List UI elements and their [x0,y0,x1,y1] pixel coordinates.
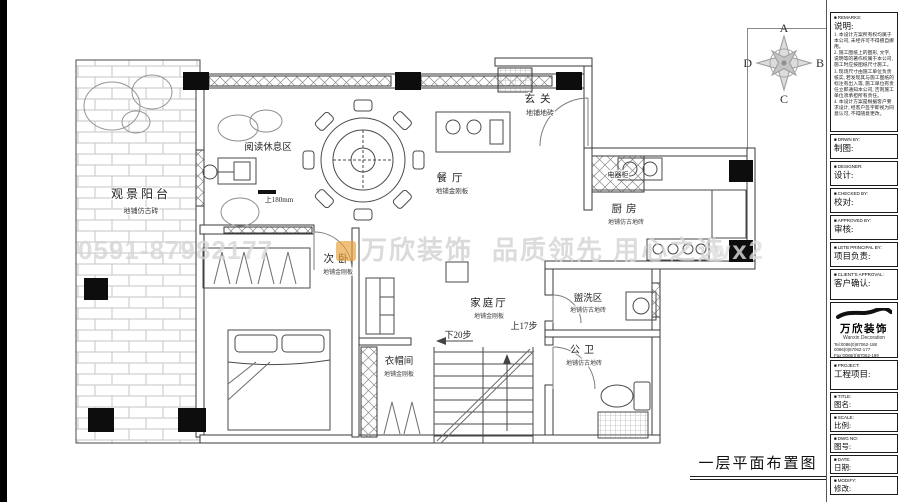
approved-by-box: APPROVED BY: 审核: [830,215,898,240]
modify-box: MODIFY: 修改: [830,476,898,495]
room-finish-wash-area: 地铺仿古地砖 [570,306,606,314]
drawn-by-label: 制图: [834,143,894,154]
title-block: REMARKS: 说明: 1. 本设计方案所有权均属于本公司, 未经许可不得擅自… [830,12,898,497]
room-finish-family-room: 地铺金刚板 [474,312,504,320]
compass-label-a: A [780,21,789,35]
modify-label: 修改: [834,484,894,493]
remarks-note-3: 3. 现场尺寸由施工单位负责核实, 若发现其与施工图纸的标注有出入等, 施工单位… [834,70,894,100]
drawn-by-box: DRWN BY: 制图: [830,134,898,159]
date-box: DATE: 日期: [830,455,898,474]
drawing-name-label: 图名: [834,400,894,409]
toilet-icon [601,382,650,410]
scale-box: SCALE: 比例: [830,413,898,432]
room-label-bedroom: 次卧 [324,252,353,265]
balcony-area [76,60,200,443]
drawing-title: 一层平面布置图 [690,452,826,480]
room-label-wardrobe: 衣帽间 [385,355,414,367]
company-name-en: Wanxin Decoration [834,335,894,341]
client-approval-label: 客户确认: [834,278,894,289]
room-finish-bathroom: 地铺仿古地砖 [566,359,602,367]
room-finish-foyer: 地铺地砖 [526,108,554,117]
project-box: PROJECT: 工程项目: [830,360,898,390]
principal-label: 项目负责: [834,251,894,262]
wardrobe-hangers-icon [384,402,420,434]
checked-by-box: CHECKED BY: 校对: [830,188,898,213]
stairs-icon [434,337,534,443]
dwg-no-label: 图号: [834,442,894,451]
room-label-balcony: 观景阳台 [111,186,171,201]
shower-drain-icon [598,412,648,438]
project-label: 工程项目: [834,369,894,380]
room-finish-dining: 地铺金刚板 [436,186,469,195]
client-approval-box: CLIENT'S APPROVAL: 客户确认: [830,269,898,300]
compass-label-b: B [816,56,824,70]
remarks-box: REMARKS: 说明: 1. 本设计方案所有权均属于本公司, 未经许可不得擅自… [830,12,898,132]
compass-label-c: C [780,92,788,106]
bed-icon [228,330,330,430]
approved-by-label: 审核: [834,224,894,235]
room-label-reading: 阅读休息区 [244,141,292,153]
room-label-dining: 餐厅 [437,171,468,184]
step-marker [258,190,276,194]
room-label-foyer: 玄关 [525,92,556,105]
drawing-name-box: TITLE: 图名: [830,392,898,411]
principal-box: LETB PRINCIPAL BY: 项目负责: [830,242,898,267]
annotation-entry-step: 上180mm [265,195,294,204]
annotation-stairs-down: 下20步 [444,330,471,340]
room-label-wash-area: 盥洗区 [574,292,603,304]
side-table-icon [446,262,468,282]
designer-label: 设计: [834,170,894,181]
room-label-appliance-cabinet: 电器柜 [608,170,629,179]
scale-label: 比例: [834,421,894,430]
remarks-notes: 1. 本设计方案所有权均属于本公司, 未经许可不得擅自挪用。 2. 施工图纸上的… [834,33,894,118]
dwg-no-box: DWG NO: 图号: [830,434,898,453]
floor-plan-canvas: 观景阳台 地铺仿古砖 阅读休息区 玄关 地铺地砖 餐厅 地铺金刚板 电器柜 厨房… [0,0,830,502]
sofa-icon [366,278,394,334]
annotation-stairs-up: 上17步 [510,321,537,331]
designer-box: DESIGNER: 设计: [830,161,898,186]
remarks-note-1: 1. 本设计方案所有权均属于本公司, 未经许可不得擅自挪用。 [834,33,894,51]
room-finish-balcony: 地铺仿古砖 [124,206,159,215]
room-finish-bedroom: 地铺金刚板 [323,268,353,276]
dining-table-icon [303,100,424,220]
company-logo-box: 万欣装饰 Wanxin Decoration Tel:0086(0)87062-… [830,302,898,358]
room-finish-wardrobe: 地铺金刚板 [384,370,414,378]
room-label-bathroom: 公卫 [570,345,598,356]
remarks-label: 说明: [834,21,894,32]
room-label-kitchen: 厨房 [612,202,641,215]
sideboard-icon [436,112,510,152]
checked-by-label: 校对: [834,197,894,208]
logo-brush-icon [836,308,892,319]
remarks-note-2: 2. 施工图纸上的图形, 文字, 说明等的著作权属于本公司, 施工时应按图纸尺寸… [834,51,894,69]
company-name: 万欣装饰 [834,324,894,335]
stove-icon [647,239,709,260]
compass-label-d: D [743,56,752,70]
company-fax: Fax:0086(0)87062-199 [834,353,894,358]
reading-desk-icon [203,110,282,226]
room-finish-kitchen: 地铺仿古地砖 [608,218,644,226]
date-label: 日期: [834,463,894,472]
remarks-note-4: 4. 本设计方案是根据客户要求设计, 经客户签字即视为同意认可, 不得随意更改。 [834,100,894,118]
closet-hangers-icon [203,248,310,288]
compass-icon: A B C D [743,21,824,106]
room-label-family-room: 家庭厅 [470,296,508,309]
